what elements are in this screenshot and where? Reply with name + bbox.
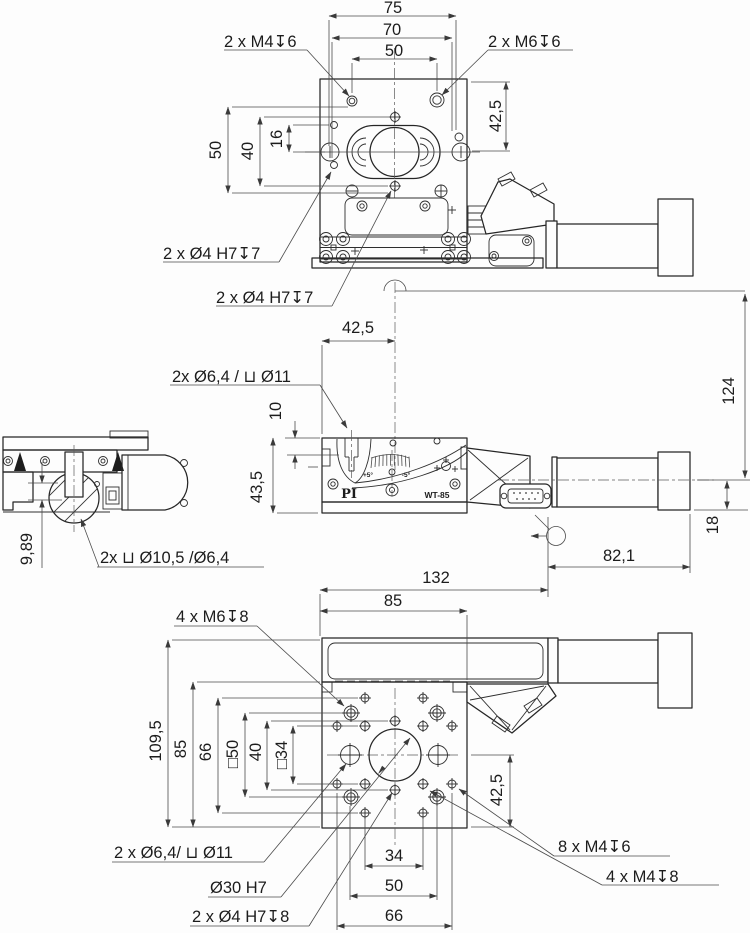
scale-minus-label: -5° xyxy=(402,471,411,479)
top-view-motor xyxy=(468,172,693,276)
bottom-view: 82,1 132 85 109,5 85 66 □50 40 □34 42,5 … xyxy=(112,514,719,930)
rear-view-geometry xyxy=(3,431,188,532)
dim-bottom-66: 66 xyxy=(385,907,403,925)
side-view-motor xyxy=(467,448,714,510)
dim-bottom-sq50: □50 xyxy=(224,740,242,768)
rear-view: 9,89 2x ⊔ Ø10,5 /Ø6,4 xyxy=(3,431,264,568)
dim-bottom-sq34: □34 xyxy=(273,741,291,769)
dim-side-10: 10 xyxy=(267,402,285,420)
dim-top-left-16: 16 xyxy=(268,130,286,148)
callout-cbore-rear: 2x ⊔ Ø10,5 /Ø6,4 xyxy=(100,549,229,567)
callout-h7-upper: 2 x Ø4 H7↧7 xyxy=(163,245,260,263)
callout-m4-top: 2 x M4↧6 xyxy=(224,33,297,51)
dim-top-70: 70 xyxy=(383,21,401,39)
dim-bottom-34: 34 xyxy=(385,847,403,865)
bottom-view-dimensions: 82,1 132 85 109,5 85 66 □50 40 □34 42,5 … xyxy=(112,514,719,930)
dim-bottom-42_5: 42,5 xyxy=(488,774,506,806)
dim-top-left-50: 50 xyxy=(207,141,225,159)
callout-h7-bottom: 2 x Ø4 H7↧8 xyxy=(192,908,289,926)
callout-h7-lower: 2 x Ø4 H7↧7 xyxy=(216,289,313,307)
dim-bottom-82_1: 82,1 xyxy=(603,547,635,565)
dim-side-43_5: 43,5 xyxy=(248,471,266,503)
dim-bottom-132: 132 xyxy=(422,569,450,587)
bottom-view-motor xyxy=(467,633,692,733)
dim-top-left-40: 40 xyxy=(239,142,257,160)
dim-top-42_5: 42,5 xyxy=(487,100,505,132)
dim-bottom-66v: 66 xyxy=(197,743,215,761)
angle-scale: +5° -5° xyxy=(363,450,411,496)
bottom-view-geometry xyxy=(322,633,692,845)
dim-side-18: 18 xyxy=(704,516,722,534)
top-view: 75 70 50 42,5 50 40 16 2 x M4↧6 2 x M6↧6… xyxy=(163,0,693,307)
dim-rear-9_89: 9,89 xyxy=(18,533,36,565)
callout-bore-30h7: Ø30 H7 xyxy=(210,879,267,897)
dim-bottom-85v: 85 xyxy=(172,740,190,758)
dim-top-50: 50 xyxy=(385,42,403,60)
callout-m6-bottom: 4 x M6↧8 xyxy=(176,608,249,626)
dim-bottom-85: 85 xyxy=(384,592,402,610)
model-label: WT-85 xyxy=(424,490,449,500)
callout-m4-8x: 8 x M4↧6 xyxy=(558,838,631,856)
dim-top-75: 75 xyxy=(384,0,402,17)
dim-bottom-109_5: 109,5 xyxy=(147,720,165,761)
dim-side-42_5: 42,5 xyxy=(342,319,374,337)
wt85-dimension-drawing: 75 70 50 42,5 50 40 16 2 x M4↧6 2 x M6↧6… xyxy=(0,0,750,933)
top-view-holes xyxy=(321,93,470,197)
callout-m6-top: 2 x M6↧6 xyxy=(488,33,561,51)
dim-side-124: 124 xyxy=(720,377,738,405)
dim-bottom-40v: 40 xyxy=(247,743,265,761)
callout-m4-4x: 4 x M4↧8 xyxy=(606,868,679,886)
side-view: +5° -5° PI WT-85 xyxy=(170,280,750,546)
dim-bottom-50: 50 xyxy=(385,877,403,895)
brand-logo: PI xyxy=(341,487,357,502)
callout-cbore-bottom: 2 x Ø6,4/ ⊔ Ø11 xyxy=(114,844,233,862)
top-view-dimensions: 75 70 50 42,5 50 40 16 2 x M4↧6 2 x M6↧6… xyxy=(163,0,573,307)
bottom-view-holes xyxy=(331,692,458,819)
technical-drawing-canvas: 75 70 50 42,5 50 40 16 2 x M4↧6 2 x M6↧6… xyxy=(0,0,750,933)
scale-plus-label: +5° xyxy=(363,471,373,479)
callout-cbore-side: 2x Ø6,4 / ⊔ Ø11 xyxy=(172,368,291,386)
